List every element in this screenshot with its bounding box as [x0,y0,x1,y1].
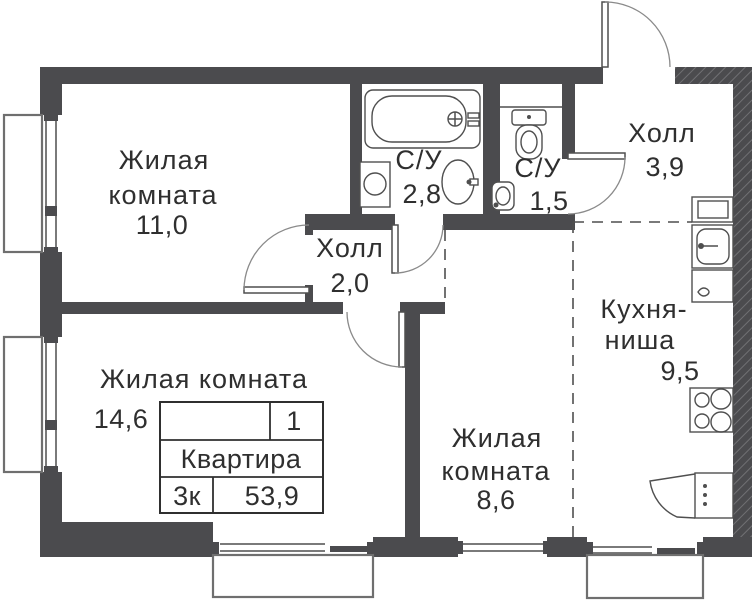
entrance-door-arc [605,2,670,67]
wall-top-left [40,67,603,84]
floorplan-svg: Жилая комната 11,0 Жилая комната 14,6 Жи… [0,0,753,600]
info-table-title: Квартира [181,444,302,474]
room11-label-2: комната [108,180,217,210]
wall-bottom-b [373,537,458,557]
kitchen-sink-icon [692,225,733,268]
hall2-label: Холл [316,233,384,263]
room14-label: Жилая комната [100,364,308,394]
kitchen-cabinet-icon [692,270,733,302]
wall-left-a [40,67,62,115]
room14-area: 14,6 [94,404,149,434]
info-table-total-area: 53,9 [245,481,300,511]
hall-cabinet-icon [692,197,733,222]
wc28-area: 2,8 [402,179,441,209]
wc28-door-arc [395,225,443,273]
room11-door-leaf [244,287,309,293]
wall-right [733,67,752,557]
wall-room14-room8 [405,312,420,537]
jamb-room11-top [305,225,313,235]
info-table: 1 Квартира 3к 53,9 [160,402,323,513]
room14-door-leaf [399,312,405,367]
wc15-label: С/У [514,153,561,183]
room11-door-arc [244,225,309,290]
entrance-door-leaf [602,2,608,67]
sink-icon [442,160,478,204]
kitchen-area: 9,5 [660,356,699,386]
floorplan: Жилая комната 11,0 Жилая комната 14,6 Жи… [0,0,753,600]
wall-room14-top [58,302,343,314]
wc28-label: С/У [395,145,442,175]
room11-label-1: Жилая [119,145,209,175]
wall-bottom-a [40,537,213,557]
wall-bath-bottom-left [305,214,395,230]
wall-left-b [40,252,62,337]
info-table-unit-number: 1 [286,406,302,436]
room8-area: 8,6 [476,485,515,515]
loggia-left-top [4,115,42,252]
wc15-door-arc [568,157,625,214]
small-sink-icon [492,182,514,210]
wc15-area: 1,5 [529,186,568,216]
window-mullion-1 [45,206,57,216]
balcony-door-panel-2 [657,548,695,554]
hall39-area: 3,9 [645,152,684,182]
balcony-bottom-right [587,555,703,598]
bathtub-icon [365,90,480,148]
wc15-door-leaf [568,153,625,159]
room11-area: 11,0 [136,210,189,240]
window-mullion-2 [45,420,57,430]
fridge-icon [650,473,733,518]
wall-wc15-right [562,84,575,159]
room14-door-arc [347,312,402,367]
loggia-left-bottom [4,337,42,472]
stove-icon [690,388,733,432]
hall2-area: 2,0 [330,268,369,298]
wall-bottom-d [703,537,752,557]
kitchen-label-2: ниша [605,325,676,355]
washing-machine-icon [360,162,390,207]
toilet-icon [512,110,546,159]
wc28-door-leaf [392,225,398,273]
info-table-rooms-count: 3к [173,481,201,511]
wall-bath-bottom-right [443,214,575,230]
hall39-label: Холл [628,118,696,148]
kitchen-label-1: Кухня- [600,294,687,324]
room8-label-2: комната [441,456,550,486]
wall-bottom-c [547,537,587,557]
balcony-door-panel-1 [330,546,367,552]
room8-label-1: Жилая [452,423,542,453]
balcony-bottom-left [213,555,373,597]
wall-bottom-thick [62,522,213,539]
